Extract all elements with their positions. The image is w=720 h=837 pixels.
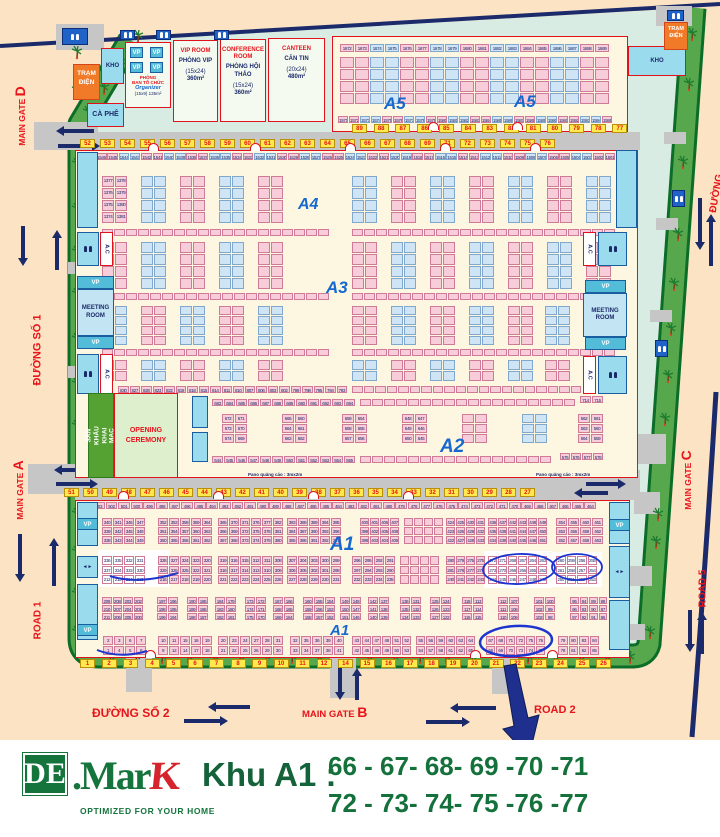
booth-cell — [352, 266, 364, 277]
booth-cell — [384, 456, 395, 463]
door-icon — [428, 122, 439, 130]
booth-cell: 1541 — [153, 153, 164, 160]
road-2-label: ROAD 2 — [534, 704, 576, 716]
booth-cell: 253 — [588, 575, 598, 584]
booth-cell — [404, 278, 416, 289]
gate-number: 26 — [596, 659, 611, 668]
booth-cell: 307 — [287, 556, 297, 565]
booth-cell: 405 — [380, 527, 389, 535]
road-arrow-icon — [426, 717, 470, 727]
booth-cell — [385, 57, 399, 68]
street-2-label: ĐƯỜNG SỐ 2 — [92, 706, 170, 720]
booth-cell: 1502 — [593, 153, 604, 160]
booth-cell: 93 — [580, 605, 589, 612]
booth-cell: 464 — [584, 502, 596, 509]
booth-cell: 1513 — [469, 153, 480, 160]
booth-cell: 80 — [569, 636, 579, 645]
booth-cell: 658 — [342, 424, 354, 433]
booth-cell: 1522 — [367, 153, 378, 160]
booth-cell: 301 — [320, 566, 330, 575]
booth-cell: 1530 — [277, 153, 288, 160]
booth-cell: 62 — [456, 646, 465, 655]
booth-cell — [545, 316, 557, 325]
booth-cell — [469, 176, 481, 187]
booth-cell: 1578 — [415, 116, 425, 123]
booth-cell — [456, 399, 467, 406]
booth-cell: 1675 — [385, 44, 399, 52]
booth-cell — [475, 414, 487, 423]
booth-cell: 101 — [534, 597, 544, 604]
gate-number: 46 — [159, 488, 174, 497]
booth-cell: 426 — [456, 527, 465, 535]
zone-label-a1: A1 — [330, 534, 354, 556]
booth-cell — [586, 212, 598, 223]
booth-cell — [141, 306, 153, 315]
booth-cell — [193, 242, 205, 253]
booth-cell — [352, 188, 364, 199]
booth-cell — [490, 57, 504, 68]
booth-cell: 11 — [169, 636, 179, 645]
booth-cell: 257 — [577, 566, 587, 575]
booth-cell — [482, 371, 494, 381]
booth-cell — [154, 371, 166, 381]
booth-cell: 339 — [102, 527, 112, 535]
booth-cell — [391, 326, 403, 335]
booth-cell: 198 — [157, 605, 167, 612]
booth-cell — [520, 349, 531, 356]
booth-cell: 1581 — [448, 116, 458, 123]
booth-cell — [364, 293, 375, 300]
booth-cell — [400, 293, 411, 300]
booth-cell: 1520 — [390, 153, 401, 160]
booth-cell — [480, 456, 491, 463]
booth-cell — [443, 266, 455, 277]
booth-cell: 650 — [402, 434, 414, 443]
booth-cell — [565, 81, 579, 92]
booth-cell — [544, 293, 555, 300]
booth-cell: 319 — [218, 556, 228, 565]
booth-cell: 562 — [578, 414, 590, 423]
booth-cell — [443, 188, 455, 199]
booth-cell — [141, 360, 153, 370]
vp-room-chip: VP — [130, 47, 143, 58]
booth-cell — [460, 69, 474, 80]
booth-cell: 271 — [498, 556, 507, 565]
booth-cell: 1527 — [311, 153, 322, 160]
booth-cell — [460, 293, 471, 300]
booth-cell: 485 — [320, 502, 332, 509]
booth-cell — [430, 266, 442, 277]
booth-cell: 268 — [508, 556, 517, 565]
gate-number: 39 — [292, 488, 307, 497]
booth-cell: 687 — [260, 399, 271, 406]
booth-cell — [355, 57, 369, 68]
booth-cell: 332 — [124, 556, 134, 565]
booth-cell — [599, 200, 611, 211]
booth-cell — [508, 326, 520, 335]
booth-cell: 1572 — [349, 116, 359, 123]
main-gate-a-text: MAIN GATE A — [10, 460, 26, 520]
booth-cell: 95 — [570, 597, 579, 604]
booth-cell: 234 — [374, 575, 384, 584]
booth-cell — [430, 254, 442, 265]
booth-cell — [445, 81, 459, 92]
booth-cell: 170 — [256, 613, 266, 620]
booth-cell: 331 — [135, 556, 145, 565]
booth-cell — [391, 360, 403, 370]
stage-label: SÂN KHẤU KHAI MẠC — [85, 424, 116, 448]
booth-cell — [532, 293, 543, 300]
gate-number: 49 — [102, 488, 117, 497]
booth-cell: 72 — [516, 636, 525, 645]
booth-cell: 493 — [219, 502, 231, 509]
booth-cell — [193, 254, 205, 265]
booth-cell — [547, 278, 559, 289]
booth-cell — [370, 69, 384, 80]
booth-cell: 76 — [536, 636, 545, 645]
road-arrow-icon — [574, 488, 608, 498]
booth-cell — [271, 278, 283, 289]
booth-cell: 59 — [436, 636, 445, 645]
booth-cell — [114, 293, 125, 300]
restroom-icon — [655, 340, 668, 357]
booth-cell — [271, 371, 283, 381]
conference-size: (15x24) — [221, 83, 265, 89]
road-arrow-icon — [335, 668, 345, 700]
booth-cell — [532, 229, 543, 236]
booth-cell: 669 — [235, 434, 247, 443]
booth-cell: 228 — [298, 575, 308, 584]
booth-cell: 221 — [218, 575, 228, 584]
booth-cell — [443, 360, 455, 370]
booth-cell: 1679 — [445, 44, 459, 52]
booth-cell — [193, 326, 205, 335]
booth-cell — [180, 306, 192, 315]
booth-cell: 153 — [325, 605, 335, 612]
gate-number: 36 — [349, 488, 364, 497]
booth-cell: 378 — [262, 527, 272, 535]
booth-cell: 41 — [334, 646, 344, 655]
booth-cell — [558, 360, 570, 370]
booth-cell: 422 — [446, 536, 455, 544]
booth-cell — [448, 349, 459, 356]
booth-cell — [391, 306, 403, 315]
booth-cell: 424 — [446, 518, 455, 526]
booth-cell — [258, 266, 270, 277]
booth-cell: 70 — [506, 646, 515, 655]
booth-cell: 407 — [390, 518, 399, 526]
booth-cell: 134 — [400, 613, 410, 620]
booth-cell: 38 — [323, 646, 333, 655]
gate-number: 88 — [374, 124, 389, 133]
booth-cell: 183 — [215, 605, 225, 612]
booth-cell — [141, 254, 153, 265]
booth-cell — [408, 399, 419, 406]
service-block — [616, 150, 637, 228]
booth-cell: 73 — [516, 646, 525, 655]
booth-cell — [193, 188, 205, 199]
booth-cell — [234, 293, 245, 300]
power-station-label: TRẠM ĐIỆN — [77, 70, 96, 86]
booth-cell: 37 — [312, 646, 322, 655]
gate-number: 74 — [500, 139, 515, 148]
booth-cell: 350 — [158, 536, 168, 544]
booth-cell — [568, 293, 579, 300]
booth-cell: 423 — [446, 527, 455, 535]
booth-cell — [404, 176, 416, 187]
booth-cell: 1592 — [569, 116, 579, 123]
booth-cell — [433, 386, 444, 393]
booth-cell: 577 — [582, 453, 592, 460]
booth-cell: 1543 — [130, 153, 141, 160]
booth-cell: 260 — [556, 556, 566, 565]
booth-cell: 169 — [273, 613, 283, 620]
booth-cell — [271, 200, 283, 211]
booth-cell: 42 — [352, 646, 361, 655]
booth-cell: 1678 — [430, 44, 444, 52]
booth-cell: 656 — [355, 434, 367, 443]
booth-cell: 102 — [534, 605, 544, 612]
warehouse-label: KHO — [650, 58, 663, 64]
booth-cell: 1506 — [548, 153, 559, 160]
booth-cell — [560, 188, 572, 199]
booth-cell: 227 — [287, 575, 297, 584]
service-block — [192, 432, 208, 462]
booth-cell: 341 — [113, 518, 123, 526]
booth-cell — [154, 316, 166, 325]
booth-cell: 444 — [518, 527, 527, 535]
booth-cell: 793 — [337, 386, 348, 393]
booth-cell: 1687 — [565, 44, 579, 52]
booth-cell: 1588 — [525, 116, 535, 123]
road-arrow-icon — [56, 126, 94, 136]
booth-cell — [219, 242, 231, 253]
booth-cell — [468, 399, 479, 406]
booth-cell: 490 — [257, 502, 269, 509]
booth-cell: 1672 — [340, 44, 354, 52]
booth-cell: 81 — [569, 646, 579, 655]
booth-cell — [282, 293, 293, 300]
booth-cell: 1576 — [393, 116, 403, 123]
booth-cell — [560, 278, 572, 289]
booth-cell — [126, 293, 137, 300]
booth-cell: 388 — [298, 518, 308, 526]
booth-cell: 318 — [218, 566, 228, 575]
palm-tree-icon — [645, 626, 655, 639]
booth-cell: 449 — [538, 518, 547, 526]
booth-cell: 1521 — [379, 153, 390, 160]
zone-label-a3: A3 — [326, 278, 348, 298]
booth-cell: 433 — [476, 536, 485, 544]
booth-cell: 548 — [260, 456, 271, 463]
booth-cell — [504, 399, 515, 406]
booth-cell — [482, 316, 494, 325]
booth-cell: 1524 — [345, 153, 356, 160]
booth-cell: 194 — [168, 613, 178, 620]
booth-cell — [547, 200, 559, 211]
booth-cell: 122 — [441, 613, 451, 620]
door-icon — [512, 122, 523, 130]
gate-number: 23 — [532, 659, 547, 668]
booth-cell — [400, 81, 414, 92]
canteen-title: CANTEEN — [269, 46, 324, 53]
door-icon — [250, 143, 261, 151]
booth-cell — [370, 93, 384, 104]
gate-number: 80 — [547, 124, 562, 133]
booth-cell — [180, 242, 192, 253]
gate-number: 10 — [274, 659, 289, 668]
booth-cell — [180, 360, 192, 370]
booth-cell — [222, 229, 233, 236]
booth-cell — [174, 229, 185, 236]
booth-cell — [391, 242, 403, 253]
booth-cell — [180, 254, 192, 265]
booth-cell — [430, 306, 442, 315]
canteen: CANTEEN CĂN TIN (20x24) 480m² — [268, 38, 325, 122]
booth-cell: 211 — [102, 613, 112, 620]
booth-cell: 94 — [580, 597, 589, 604]
booth-cell: 88 — [599, 597, 608, 604]
booth-cell: 1584 — [481, 116, 491, 123]
door-icon — [470, 650, 481, 658]
gate-number: 83 — [482, 124, 497, 133]
restroom-icon — [598, 232, 627, 266]
booth-cell — [186, 229, 197, 236]
booth-cell: 469 — [521, 502, 533, 509]
booth-cell — [415, 93, 429, 104]
booth-cell — [520, 293, 531, 300]
booth-cell: 190 — [187, 597, 197, 604]
booth-cell: 23 — [229, 636, 239, 645]
booth-cell — [430, 278, 442, 289]
booth-cell — [258, 188, 270, 199]
gate-number: 29 — [482, 488, 497, 497]
booth-cell: 112 — [498, 597, 508, 604]
booth-cell: 456 — [568, 527, 579, 535]
booth-cell — [475, 93, 489, 104]
booth-cell: 486 — [307, 502, 319, 509]
booth-cell: 218 — [180, 575, 190, 584]
booth-cell: 393 — [320, 527, 330, 535]
booth-cell — [360, 399, 371, 406]
booth-cell — [568, 349, 579, 356]
booth-cell: 273 — [488, 566, 497, 575]
booth-cell — [219, 188, 231, 199]
booth-cell: 115 — [473, 613, 483, 620]
booth-cell: 395 — [331, 518, 341, 526]
booth-cell — [232, 176, 244, 187]
booth-cell: 15 — [180, 636, 190, 645]
booth-cell: 1583 — [470, 116, 480, 123]
booth-cell: 189 — [187, 605, 197, 612]
booth-cell: 159 — [303, 605, 313, 612]
booth-cell: 798 — [302, 386, 313, 393]
vp-room-chip: VP — [150, 47, 163, 58]
booth-cell — [232, 306, 244, 315]
booth-cell — [391, 336, 403, 345]
booth-cell: 330 — [135, 566, 145, 575]
logo-k-text: K — [147, 754, 181, 798]
booth-cell: 261 — [556, 566, 566, 575]
booth-cell: 157 — [314, 613, 324, 620]
booth-cell: 241 — [456, 575, 465, 584]
booth-cell: 1381 — [115, 212, 127, 223]
booth-cell: 1585 — [492, 116, 502, 123]
booth-cell — [482, 360, 494, 370]
booth-cell: 1681 — [475, 44, 489, 52]
booth-cell — [595, 93, 609, 104]
booth-cell: 691 — [308, 399, 319, 406]
booth-cell: 432 — [476, 527, 485, 535]
direction-arrows-icon: ◄► — [77, 556, 98, 578]
booth-cell — [508, 229, 519, 236]
booth-cell — [443, 176, 455, 187]
booth-cell — [258, 254, 270, 265]
booth-cell — [365, 176, 377, 187]
meeting-room-left: MEETING ROOM — [77, 289, 114, 336]
booth-cell — [571, 386, 582, 393]
booth-cell: 1577 — [404, 116, 414, 123]
booth-cell: 251 — [567, 575, 577, 584]
gate-number: 24 — [553, 659, 568, 668]
booth-cell — [421, 386, 432, 393]
booth-cell: 141 — [368, 605, 378, 612]
booth-cell — [516, 399, 527, 406]
booth-cell: 390 — [309, 527, 319, 535]
booth-cell — [385, 69, 399, 80]
booth-cell: 54 — [416, 646, 425, 655]
booth-cell — [376, 293, 387, 300]
booth-cell: 68 — [496, 636, 505, 645]
gate-number: 56 — [160, 139, 175, 148]
booth-cell: 83 — [579, 636, 589, 645]
booth-cell: 483 — [345, 502, 357, 509]
logo-tagline: OPTIMIZED FOR YOUR HOME — [80, 806, 215, 816]
gate-number: 77 — [612, 124, 627, 133]
booth-cell: 1507 — [537, 153, 548, 160]
booth-cell: 243 — [476, 575, 485, 584]
booth-cell: 1512 — [480, 153, 491, 160]
road-1-text: ROAD 1 — [33, 601, 44, 639]
booth-cell: 1523 — [356, 153, 367, 160]
booth-cell — [115, 360, 127, 370]
booth-cell: 300 — [320, 556, 330, 565]
booth-cell — [364, 349, 375, 356]
booth-cell: 340 — [102, 518, 112, 526]
booth-cell: 377 — [262, 518, 272, 526]
booth-cell: 654 — [355, 414, 367, 423]
booth-cell: 1535 — [220, 153, 231, 160]
booth-cell: 694 — [344, 399, 355, 406]
booth-cell — [193, 360, 205, 370]
booth-cell: 172 — [256, 597, 266, 604]
booth-cell — [365, 212, 377, 223]
booth-cell: 348 — [135, 527, 145, 535]
booth-cell — [528, 399, 539, 406]
booth-cell: 250 — [556, 575, 566, 584]
booth-cell: 409 — [390, 536, 399, 544]
gate-number: 69 — [420, 139, 435, 148]
booth-cell: 292 — [374, 556, 384, 565]
palm-tree-icon — [666, 323, 676, 336]
booth-cell: 303 — [309, 556, 319, 565]
booth-cell — [186, 293, 197, 300]
booth-cell: 670 — [235, 424, 247, 433]
booth-cell — [150, 349, 161, 356]
booth-cell — [365, 360, 377, 370]
booth-cell — [444, 386, 455, 393]
booth-cell — [294, 293, 305, 300]
